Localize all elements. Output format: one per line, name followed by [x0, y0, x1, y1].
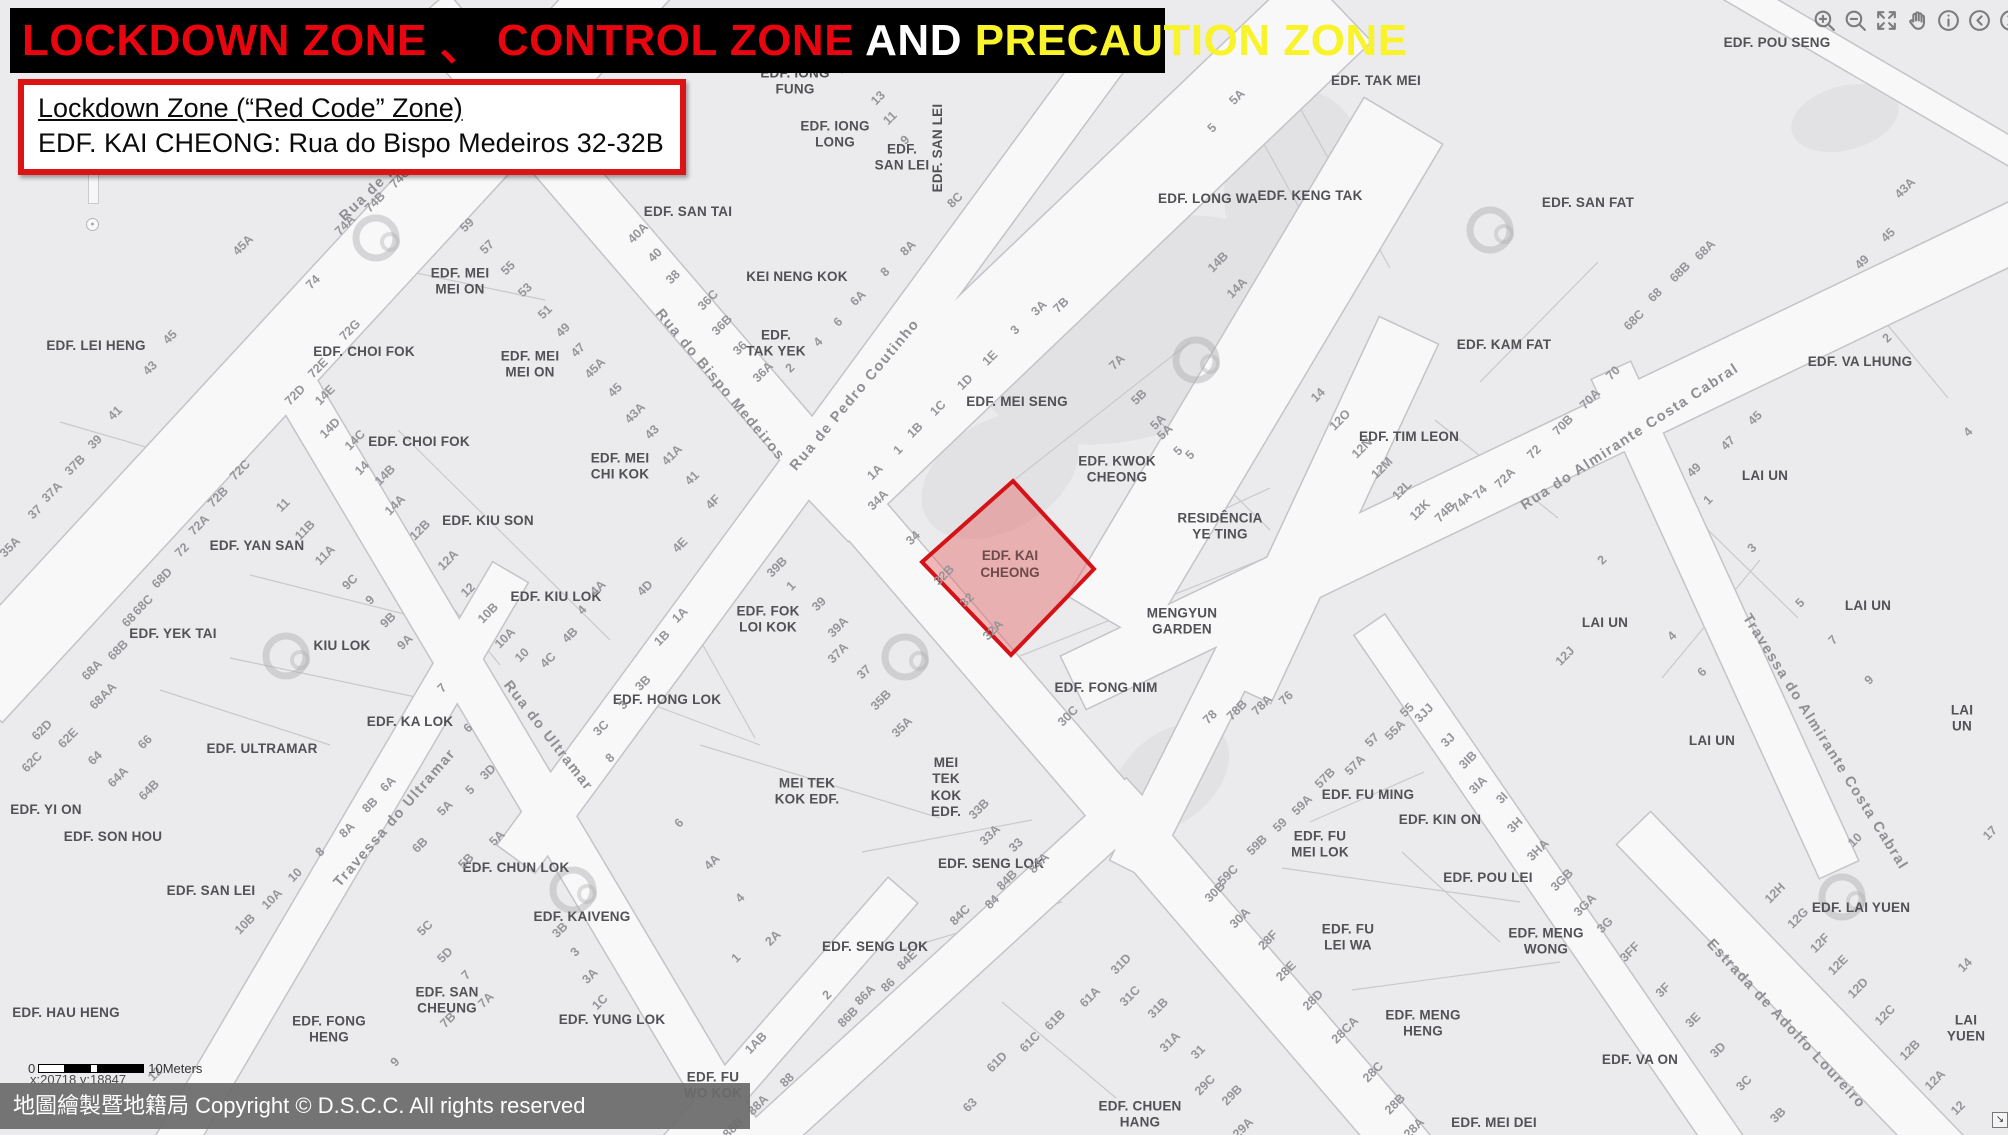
building-label: EDF. LAI YUEN [1812, 900, 1910, 916]
street-number: 70B [1550, 412, 1576, 438]
building-label: EDF. SAN TAI [644, 204, 732, 220]
street-number: 55 [1397, 700, 1417, 720]
street-number: 2 [783, 361, 798, 376]
street-number: 8 [313, 845, 328, 860]
street-number: 6B [409, 834, 430, 855]
street-number: 72E [305, 355, 331, 381]
street-number: 7A [1106, 351, 1127, 372]
street-number: 7B [1050, 294, 1071, 315]
street-number: 3E [1683, 1010, 1704, 1031]
building-label: EDF. KIU LOK [511, 589, 602, 605]
street-number: 1B [651, 627, 672, 648]
building-label: EDF. FU LEI WA [1322, 922, 1374, 955]
street-number: 43 [140, 358, 160, 378]
street-number: 57B [1312, 765, 1338, 791]
street-number: 39 [85, 432, 105, 452]
street-number: 68 [119, 610, 139, 630]
pan-hand-icon[interactable] [1905, 8, 1930, 33]
street-number: 31B [1145, 995, 1171, 1021]
title-segment: PRECAUTION ZONE [975, 16, 1408, 66]
building-label: EDF. KA LOK [367, 714, 453, 730]
title-banner: LOCKDOWN ZONE 、 CONTROL ZONE AND PRECAUT… [10, 8, 1165, 73]
street-number: 13 [868, 88, 888, 108]
street-number: 68AA [87, 680, 120, 713]
street-number: 59A [1289, 792, 1315, 818]
street-number: 4B [559, 624, 580, 645]
street-number: 5A [1226, 86, 1247, 107]
street-number: 3B [549, 919, 570, 940]
building-label: EDF. VA ON [1602, 1052, 1678, 1068]
street-number: 36A [750, 359, 776, 385]
street-number: 62E [55, 725, 81, 751]
street-number: 5C [414, 917, 435, 938]
street-number: 6A [847, 287, 868, 308]
street-number: 28C [1360, 1059, 1386, 1085]
street-number: 63 [960, 1095, 980, 1115]
street-number: 12D [1845, 975, 1871, 1001]
street-number: 30A [1227, 905, 1253, 931]
building-label: EDF. SAN LEI [930, 104, 946, 193]
street-number: 68B [1667, 259, 1693, 285]
street-number: 31D [1108, 951, 1134, 977]
street-number: 5 [1205, 121, 1220, 136]
street-number: 3F [1653, 980, 1673, 1000]
building-label: EDF. YUNG LOK [559, 1012, 666, 1028]
building-label: LAI UN [1582, 615, 1628, 631]
street-number: 6 [461, 721, 476, 736]
street-number: 7 [459, 968, 474, 983]
info-line-address: EDF. KAI CHEONG: Rua do Bispo Medeiros 3… [38, 126, 664, 161]
street-number: 2 [1595, 553, 1610, 568]
street-number: 41 [105, 403, 125, 423]
street-number: 11 [880, 108, 899, 127]
street-number: 1D [954, 371, 975, 392]
map-toolbar [1812, 8, 2008, 33]
prev-view-icon[interactable] [1967, 8, 1992, 33]
street-number: 4A [701, 851, 722, 872]
next-view-icon[interactable] [1998, 8, 2008, 33]
street-number: 12A [1922, 1067, 1948, 1093]
street-number: 62C [19, 749, 45, 775]
street-number: 4D [634, 577, 655, 598]
street-number: 33 [1006, 835, 1026, 855]
street-number: 3D [1707, 1039, 1728, 1060]
street-number: 31C [1117, 983, 1143, 1009]
building-label: EDF. YEK TAI [129, 626, 216, 642]
street-number: 14 [1308, 385, 1328, 405]
street-number: 5A [434, 797, 455, 818]
street-number: 66 [135, 732, 155, 752]
street-number: 9B [377, 609, 398, 630]
street-number: 49 [1684, 460, 1704, 480]
street-number: 84C [947, 902, 973, 928]
street-number: 14A [1224, 275, 1250, 301]
zoom-in-icon[interactable] [1812, 8, 1837, 33]
lockdown-zone-label: EDF. KAI CHEONG [980, 548, 1039, 582]
street-number: 1AB [742, 1029, 770, 1057]
resize-handle-icon[interactable]: ↘ [1992, 1112, 2008, 1128]
building-label: KIU LOK [314, 638, 371, 654]
street-number: 14C [342, 427, 368, 453]
street-name-label: Rua do Ultramar [500, 678, 596, 794]
street-number: 86A [852, 982, 878, 1008]
street-number: 9 [363, 593, 378, 608]
street-number: 47 [1718, 433, 1738, 453]
street-number: 76 [1276, 688, 1296, 708]
building-label: EDF. SAN LEI [167, 883, 256, 899]
building-label: RESIDÊNCIA YE TING [1177, 511, 1262, 544]
street-number: 8 [603, 751, 618, 766]
street-number: 51 [535, 302, 555, 322]
street-number: 7A [475, 989, 496, 1010]
building-label: MENGYUN GARDEN [1147, 606, 1217, 639]
title-segment: CONTROL ZONE [497, 16, 854, 66]
street-number: 8C [944, 189, 965, 210]
street-name-label: Estrada de Adolfo Loureiro [1703, 936, 1868, 1112]
street-number: 38 [663, 267, 683, 287]
street-number: 4C [537, 649, 558, 670]
street-number: 11 [273, 495, 292, 514]
street-number: 3 [616, 698, 631, 713]
street-number: 72A [186, 512, 212, 538]
street-number: 61B [1042, 1007, 1068, 1033]
street-number: 10 [285, 865, 305, 885]
street-number: 78 [1200, 707, 1220, 727]
street-number: 43A [1892, 175, 1918, 201]
street-number: 68D [149, 565, 175, 591]
building-label: EDF. SON HOU [64, 829, 162, 845]
building-label: LAI UN [1742, 468, 1788, 484]
street-number: 70 [1603, 363, 1623, 383]
street-number: 5 [463, 783, 478, 798]
street-number: 5 [1183, 448, 1198, 463]
street-number: 28CA [1329, 1014, 1362, 1047]
street-number: 12J [1553, 644, 1578, 669]
street-number: 36C [695, 287, 721, 313]
street-number: 14A [382, 492, 408, 518]
street-number: 2 [1880, 331, 1895, 346]
street-number: 3G [1594, 914, 1616, 936]
street-number: 8B [359, 794, 380, 815]
zoom-out-icon[interactable] [1843, 8, 1868, 33]
street-number: 29B [1219, 1082, 1245, 1108]
street-number: 39B [764, 554, 790, 580]
street-number: 7 [1826, 633, 1841, 648]
street-number: 8 [878, 265, 893, 280]
street-number: 1E [980, 348, 1001, 369]
street-number: 9 [1862, 673, 1877, 688]
building-label: EDF. MENG WONG [1508, 926, 1583, 959]
street-number: 61C [1017, 1029, 1043, 1055]
street-number: 3GA [1571, 891, 1599, 919]
street-number: 34A [865, 487, 891, 513]
street-number: 39A [825, 614, 851, 640]
building-label: EDF. KENG TAK [1257, 188, 1362, 204]
street-number: 68 [1645, 285, 1665, 305]
building-label: EDF. SAN FAT [1542, 195, 1634, 211]
building-label: MEI TEK KOK EDF. [931, 755, 962, 821]
street-number: 74 [303, 272, 323, 292]
street-number: 28E [1273, 958, 1299, 984]
street-number: 55A [1382, 717, 1408, 743]
building-label: EDF. LEI HENG [46, 338, 145, 354]
building-label: LAI YUEN [1945, 1013, 1987, 1046]
street-number: 5 [1171, 444, 1186, 459]
street-number: 10A [492, 625, 518, 651]
street-number: 5 [1793, 596, 1808, 611]
street-number: 72D [282, 382, 308, 408]
street-number: 12M [1368, 454, 1395, 481]
building-label: EDF. TIM LEON [1359, 429, 1459, 445]
street-number: 1A [669, 604, 690, 625]
map-viewer: Rua de FranRua do Bispo MedeirosRua de P… [0, 0, 2008, 1135]
street-number: 30B [1202, 879, 1228, 905]
street-number: 57 [477, 237, 497, 257]
street-number: 1C [589, 991, 610, 1012]
street-name-label: Rua de Pedro Coutinho [787, 316, 923, 474]
street-number: 4 [811, 335, 826, 350]
street-number: 12N [1349, 435, 1375, 461]
building-label: EDF. MENG HENG [1385, 1008, 1460, 1041]
legend-marker-icon: ● [86, 218, 99, 231]
street-number: 3C [1733, 1072, 1754, 1093]
street-number: 14D [317, 415, 343, 441]
street-number: 12K [1407, 497, 1433, 523]
building-label: EDF. HONG LOK [613, 692, 721, 708]
street-number: 40A [625, 220, 651, 246]
building-label: EDF. YI ON [10, 802, 82, 818]
street-number: 45A [230, 232, 256, 258]
street-number: 84 [982, 892, 1002, 912]
street-number: 28D [1300, 987, 1326, 1013]
street-number: 72A [1492, 465, 1518, 491]
building-label: EDF. MEI MEI ON [501, 349, 560, 382]
street-number: 84B [994, 867, 1020, 893]
street-number: 68A [1692, 237, 1718, 263]
street-number: 33B [966, 796, 992, 822]
street-number: 7 [435, 681, 450, 696]
street-number: 3B [632, 672, 653, 693]
street-number: 36B [709, 312, 735, 338]
street-number: 5A [1147, 411, 1168, 432]
street-number: 68C [1621, 307, 1647, 333]
street-number: 11B [292, 517, 318, 543]
street-number: 68A [79, 657, 105, 683]
street-number: 78B [1224, 697, 1250, 723]
street-number: 3GB [1548, 866, 1576, 894]
building-label: EDF. IONG LONG [800, 119, 869, 152]
building-label: EDF. MEI MEI ON [431, 266, 490, 299]
street-number: 40 [645, 245, 665, 265]
street-number: 74B [362, 189, 388, 215]
street-number: 72 [172, 540, 192, 560]
street-number: 5A [486, 827, 507, 848]
street-number: 6A [377, 773, 398, 794]
street-number: 37B [62, 452, 88, 478]
street-number: 35B [868, 687, 894, 713]
street-number: 9 [898, 133, 913, 148]
street-number: 28B [1382, 1091, 1408, 1117]
building-label: EDF. FOK LOI KOK [736, 604, 799, 637]
street-number: 6 [672, 816, 687, 831]
street-number: 43A [622, 400, 648, 426]
street-number: 45A [582, 355, 608, 381]
street-number: 1 [729, 951, 744, 966]
street-number: 78A [1249, 692, 1275, 718]
info-line-zone-type: Lockdown Zone (“Red Code” Zone) [38, 91, 664, 126]
street-number: 70A [1577, 386, 1603, 412]
street-number: 47 [568, 340, 588, 360]
street-number: 10 [1845, 830, 1865, 850]
street-number: 10B [475, 600, 501, 626]
street-number: 12O [1327, 407, 1354, 434]
building-label: EDF. POU LEI [1443, 870, 1532, 886]
street-number: 3H [1504, 814, 1525, 835]
building-label: EDF. FONG NIM [1054, 680, 1157, 696]
street-number: 74B [1432, 499, 1458, 525]
street-number: 32B [931, 562, 957, 588]
street-number: 1 [1701, 493, 1716, 508]
street-number: 31 [1188, 1042, 1208, 1062]
street-number: 3J [1438, 730, 1458, 750]
building-label: EDF. YAN SAN [210, 538, 305, 554]
copyright-bar: 地圖繪製暨地籍局 Copyright © D.S.C.C. All rights… [0, 1083, 750, 1129]
street-number: 12G [1785, 905, 1812, 932]
building-label: EDF. FONG HENG [292, 1014, 366, 1047]
street-number: 72 [1524, 442, 1544, 462]
building-label: MEI TEK KOK EDF. [775, 776, 840, 809]
street-number: 14 [352, 458, 372, 478]
street-number: 3B [1767, 1104, 1788, 1125]
street-number: 4F [703, 492, 723, 512]
building-label: EDF. HAU HENG [12, 1005, 120, 1021]
street-number: 35A [0, 534, 23, 560]
street-number: 12 [1948, 1098, 1968, 1118]
street-number: 57 [1362, 730, 1382, 750]
street-name-label: Rua do Almirante Costa Cabral [1518, 360, 1742, 513]
street-number: 59 [1270, 815, 1290, 835]
street-name-label: Rua do Bispo Medeiros [652, 306, 788, 464]
street-number: 3HA [1524, 836, 1552, 864]
building-label: EDF. SAN LEI [875, 142, 930, 175]
street-number: 86B [835, 1004, 861, 1030]
info-icon[interactable] [1936, 8, 1961, 33]
street-number: 74A [332, 212, 358, 238]
street-number: 6 [831, 315, 846, 330]
street-number: 86 [878, 975, 898, 995]
street-number: 34 [903, 528, 923, 548]
street-number: 64 [85, 748, 105, 768]
building-label: EDF. ULTRAMAR [206, 741, 317, 757]
street-number: 4 [575, 603, 590, 618]
building-label: EDF. KIU SON [442, 513, 534, 529]
street-number: 32 [957, 590, 977, 610]
street-number: 10B [232, 911, 258, 937]
street-number: 45 [160, 327, 180, 347]
street-number: 14B [372, 462, 398, 488]
street-number: 12 [458, 580, 478, 600]
street-number: 3C [590, 717, 611, 738]
street-number: 88 [777, 1070, 797, 1090]
building-label: EDF. KAM FAT [1457, 337, 1551, 353]
street-number: 29A [1230, 1115, 1256, 1135]
street-number: 37 [25, 502, 45, 522]
street-number: 3IA [1466, 773, 1490, 797]
street-number: 59 [457, 215, 477, 235]
street-number: 32A [980, 617, 1006, 643]
fullscreen-icon[interactable] [1874, 8, 1899, 33]
street-number: 30C [1055, 703, 1081, 729]
title-segment: LOCKDOWN ZONE [22, 16, 427, 66]
street-number: 64B [136, 777, 162, 803]
street-number: 10A [259, 886, 285, 912]
building-label: EDF. MEI CHI KOK [591, 451, 650, 484]
street-number: 45 [1745, 408, 1765, 428]
building-label: LAI UN [1939, 703, 1985, 736]
street-number: 3 [1008, 323, 1023, 338]
street-number: 12B [1897, 1037, 1923, 1063]
street-number: 14 [1955, 955, 1975, 975]
building-label: EDF. KAIVENG [534, 909, 631, 925]
street-number: 1C [927, 397, 948, 418]
street-number: 37A [825, 640, 851, 666]
street-number: 68B [105, 637, 131, 663]
street-number: 2A [762, 927, 783, 948]
street-number: 9C [339, 571, 360, 592]
building-label: EDF. KWOK CHEONG [1078, 454, 1156, 487]
street-number: 74A [1449, 489, 1475, 515]
street-number: 59B [1244, 832, 1270, 858]
street-number: 12B [407, 517, 433, 543]
building-label: EDF. TAK MEI [1331, 73, 1421, 89]
street-number: 5B [455, 850, 476, 871]
street-number: 74 [1470, 482, 1490, 502]
street-number: 45 [1878, 225, 1898, 245]
street-number: 2 [820, 988, 835, 1003]
street-number: 49 [553, 320, 573, 340]
street-number: 41A [659, 442, 685, 468]
street-number: 4 [1665, 629, 1680, 644]
building-label: EDF. CHUN LOK [463, 860, 570, 876]
street-number: 62D [29, 717, 55, 743]
street-number: 5D [434, 944, 455, 965]
street-number: 41 [682, 468, 702, 488]
street-number: 12H [1762, 880, 1788, 906]
street-number: 8A [897, 237, 918, 258]
building-label: EDF. FU MING [1322, 787, 1414, 803]
street-number: 72G [337, 317, 364, 344]
street-number: 36 [730, 338, 750, 358]
lockdown-info-box: Lockdown Zone (“Red Code” Zone) EDF. KAI… [18, 79, 686, 175]
street-number: 11A [312, 542, 338, 568]
street-number: 3A [579, 965, 600, 986]
street-number: 1 [891, 443, 906, 458]
street-number: 64A [105, 764, 131, 790]
street-number: 3I [1493, 789, 1510, 806]
street-number: 72B [205, 484, 231, 510]
street-number: 9 [388, 1055, 403, 1070]
street-number: 3JJ [1412, 701, 1437, 726]
street-number: 6 [1695, 665, 1710, 680]
title-segment: 、 [427, 9, 497, 73]
street-number: 17 [1980, 823, 2000, 843]
street-number: 28F [1255, 927, 1280, 952]
street-number: 4E [670, 535, 691, 556]
building-label: EDF. MEI DEI [1451, 1115, 1537, 1131]
street-number: 1B [904, 419, 925, 440]
street-number: 84A [1026, 850, 1052, 876]
street-name-label: Travessa do Almirante Costa Cabral [1739, 611, 1911, 873]
